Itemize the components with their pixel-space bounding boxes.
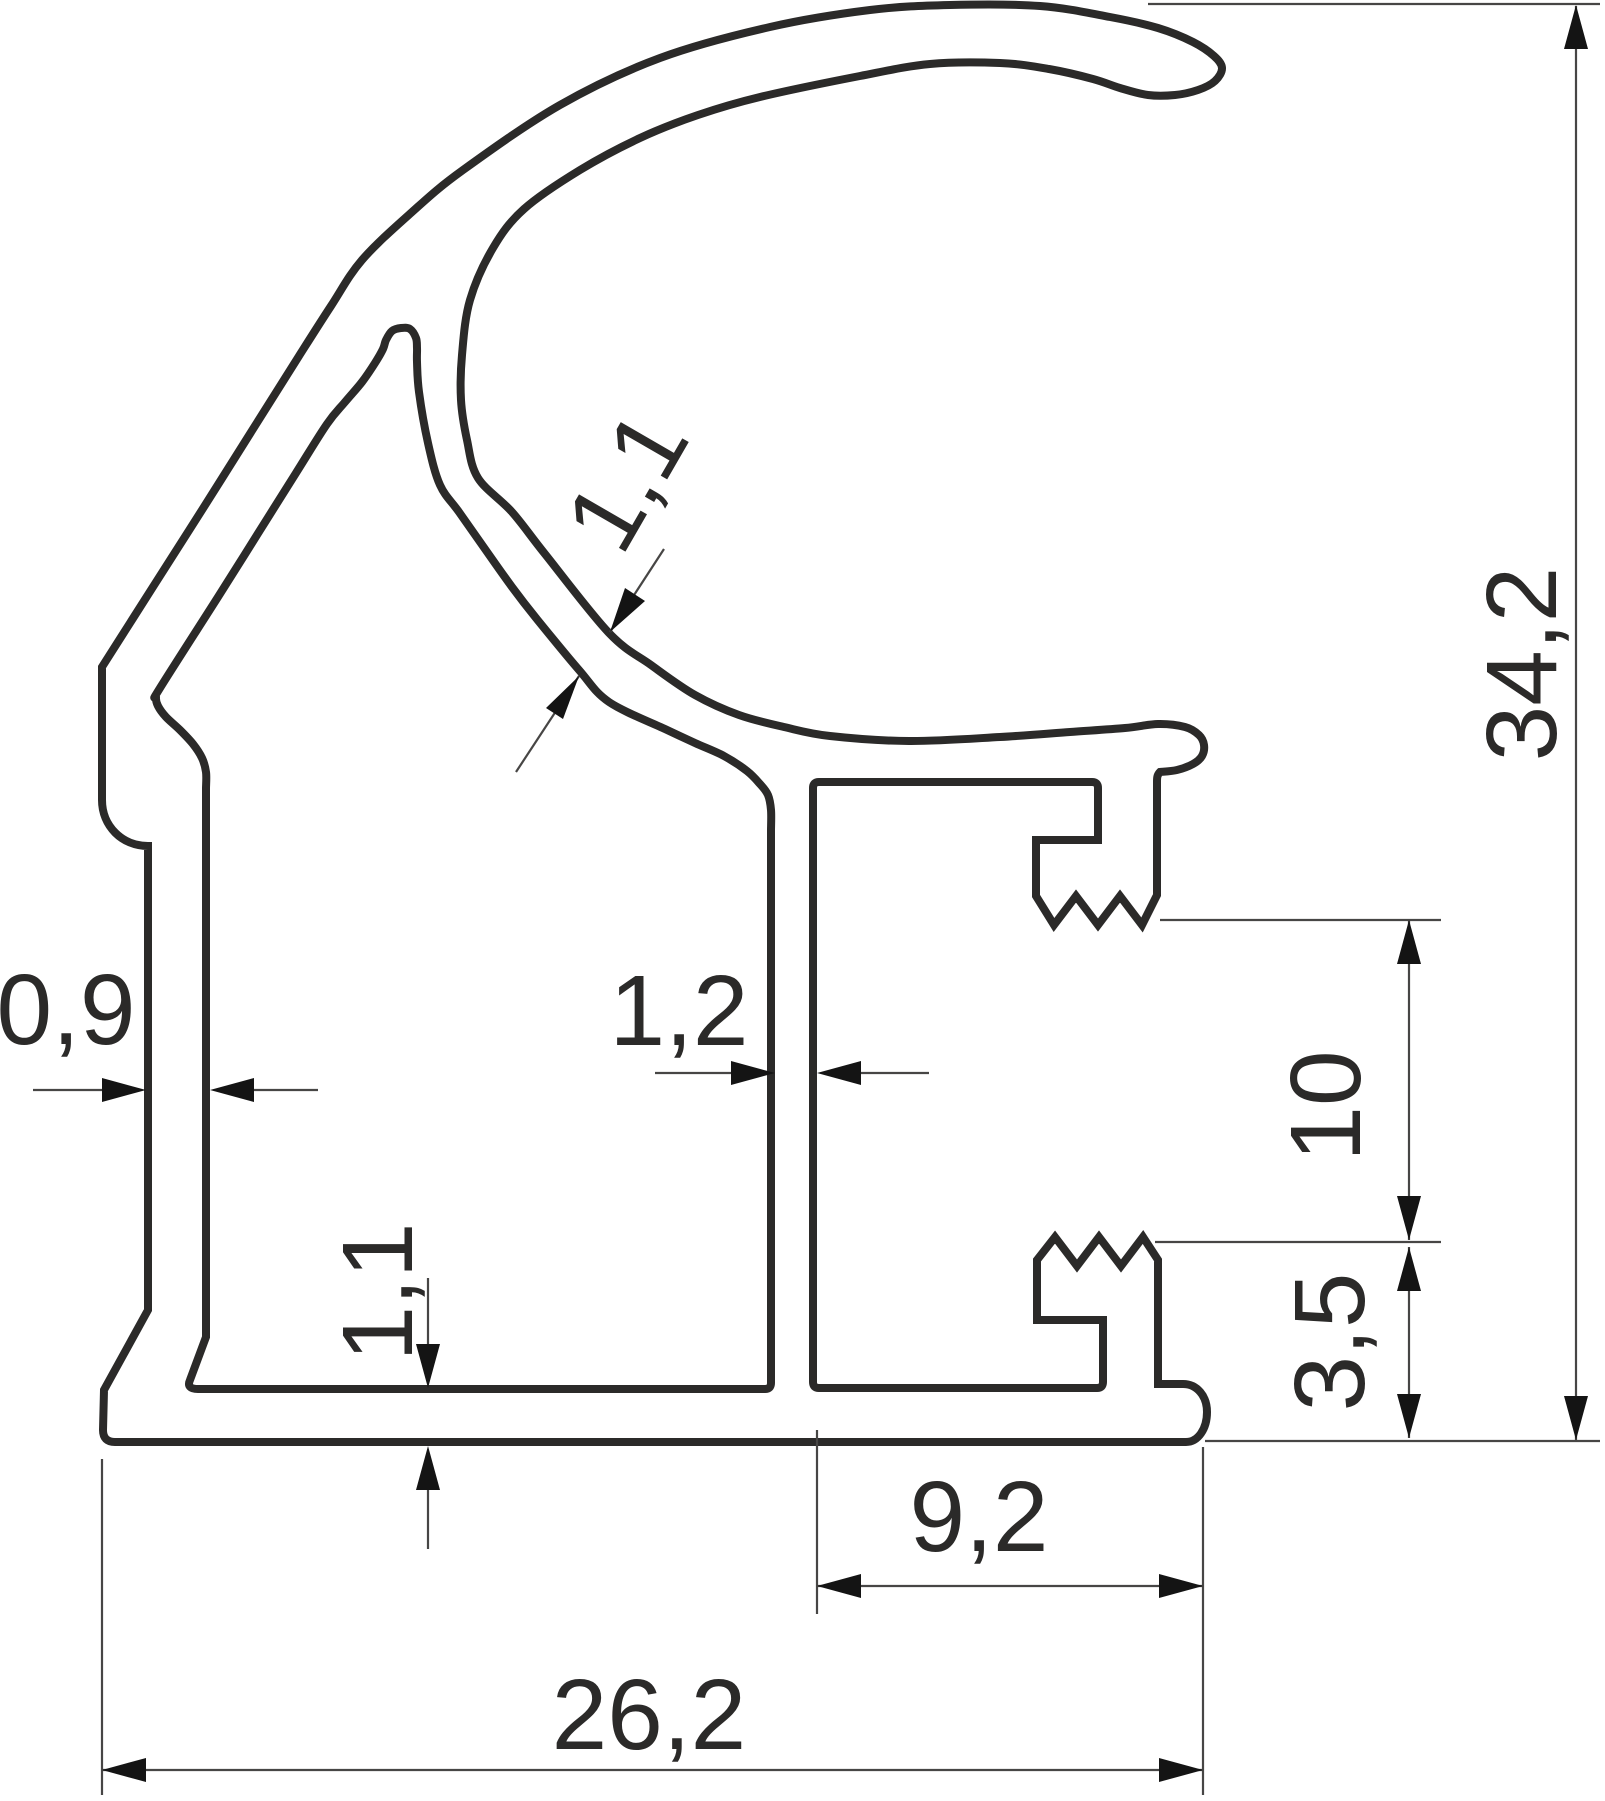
svg-text:1,1: 1,1 [322, 1222, 434, 1361]
svg-text:9,2: 9,2 [909, 1461, 1048, 1573]
svg-text:26,2: 26,2 [552, 1659, 747, 1771]
svg-text:1,2: 1,2 [609, 955, 748, 1067]
svg-text:10: 10 [1270, 1050, 1382, 1161]
svg-text:34,2: 34,2 [1466, 567, 1578, 762]
svg-text:3,5: 3,5 [1274, 1272, 1386, 1411]
svg-text:0,9: 0,9 [0, 954, 136, 1066]
